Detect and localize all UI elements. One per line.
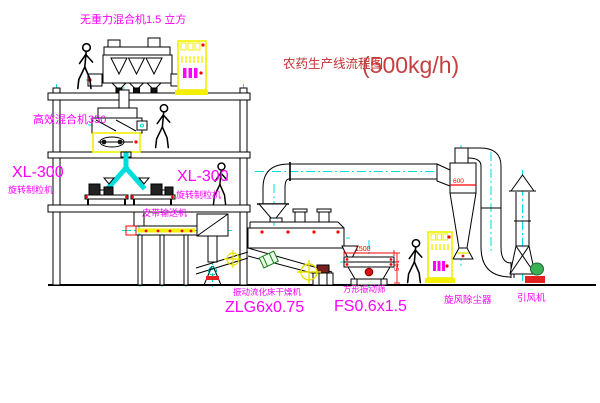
belt-conveyor-machine (126, 212, 198, 285)
label-gravity-free-mixer: 无重力混合机1.5 立方 (80, 12, 186, 26)
cad-flow-diagram: 农药生产线流程图 (500kg/h) 无重力混合机1.5 立方 高效混合机350… (0, 0, 600, 403)
granulator-left-machine (85, 178, 128, 205)
dim-sieve-length: 1500 (355, 246, 371, 253)
slab-middle (48, 152, 250, 158)
induced-draft-fan-machine (510, 246, 545, 283)
sample-drum (259, 251, 278, 268)
column-right (240, 88, 247, 285)
vibrating-sieve-machine (344, 257, 394, 285)
control-cabinet-bottom (425, 232, 455, 283)
label-granulator-left-model: XL-300 (12, 164, 64, 181)
diagram-canvas: 农药生产线流程图 (500kg/h) 无重力混合机1.5 立方 高效混合机350… (0, 0, 600, 403)
slab-top (48, 93, 250, 100)
label-dryer-model: ZLG6x0.75 (225, 299, 304, 316)
worker-figure-top (78, 44, 93, 89)
fan-motor (531, 263, 544, 275)
diagram-title-capacity: (500kg/h) (362, 52, 459, 78)
fan-base (525, 276, 545, 283)
motor-base (206, 276, 219, 280)
label-sieve-model: FS0.6x1.5 (334, 298, 407, 315)
dim-sieve-height: 541 (394, 260, 401, 271)
cabinet-symbol (433, 261, 436, 271)
y-duct (109, 155, 143, 187)
gravity-free-mixer (88, 38, 186, 112)
center-mark (224, 250, 242, 268)
label-cyclone: 旋风除尘器 (444, 294, 492, 306)
label-mixer-350: 高效混合机350 (33, 112, 106, 126)
dim-cyclone: 600 (453, 178, 464, 185)
sieve-motor (365, 268, 373, 276)
label-dryer-name: 振动流化床干燥机 (233, 287, 302, 297)
label-fan: 引风机 (517, 292, 546, 304)
control-cabinet-top (175, 41, 208, 95)
label-granulator-right-model: XL-300 (177, 168, 229, 185)
worker-figure-second (156, 105, 170, 148)
label-belt-conveyor: 皮带输送机 (142, 207, 187, 218)
label-sieve-name: 方形振动筛 (343, 284, 386, 294)
label-granulator-right-name: 旋转制粒机 (176, 189, 221, 200)
cabinet-symbol (183, 68, 187, 78)
label-granulator-left-name: 旋转制粒机 (8, 184, 53, 195)
worker-figure-ground (408, 240, 422, 283)
